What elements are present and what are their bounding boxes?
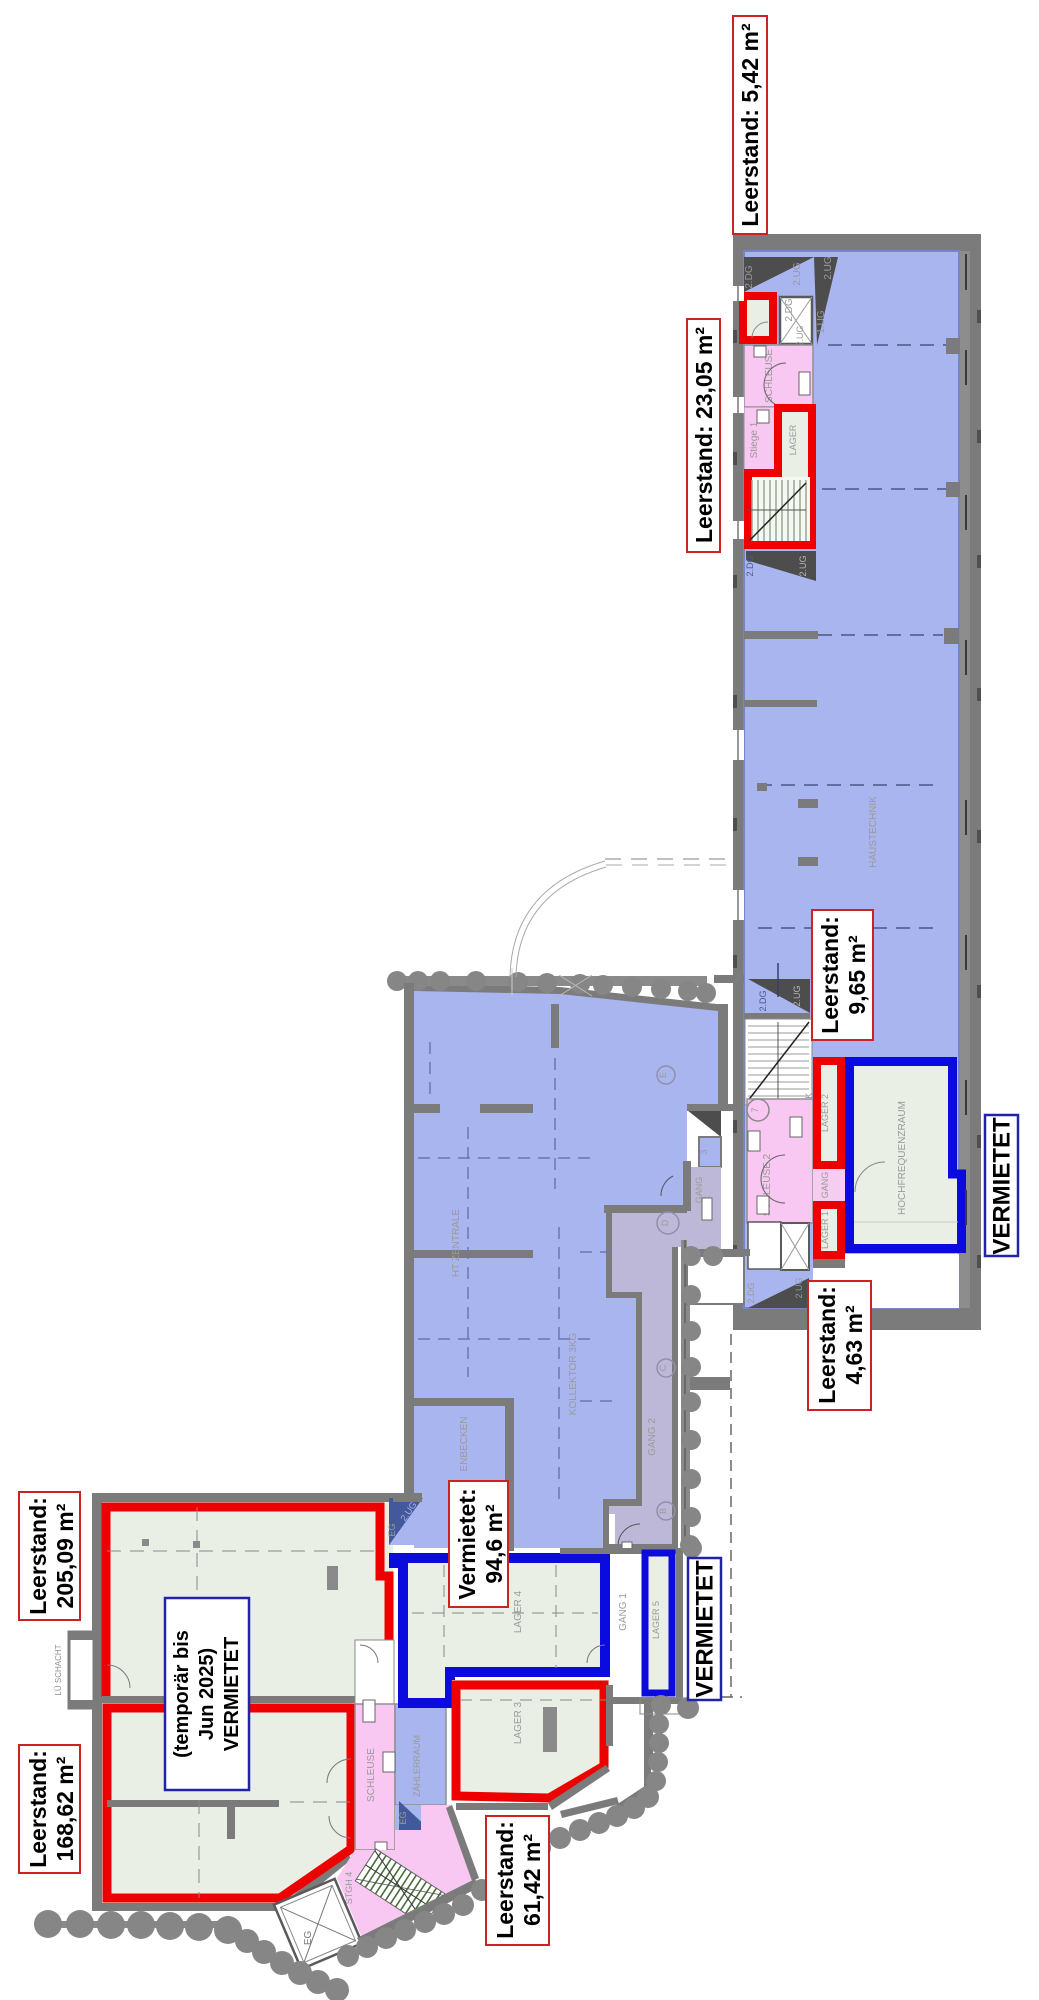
svg-text:KOLLEKTOR 3KG: KOLLEKTOR 3KG	[568, 1332, 579, 1415]
svg-text:(temporär bis: (temporär bis	[171, 1630, 193, 1758]
svg-text:61,42 m²: 61,42 m²	[519, 1834, 545, 1926]
svg-text:VERMIETET: VERMIETET	[692, 1560, 719, 1698]
svg-text:HAUSTECHNIK: HAUSTECHNIK	[868, 796, 879, 868]
svg-text:9,65 m²: 9,65 m²	[844, 935, 870, 1015]
svg-text:D: D	[660, 1219, 670, 1226]
svg-text:HOCHFREQUENZRAUM: HOCHFREQUENZRAUM	[897, 1101, 908, 1215]
svg-text:2.DG: 2.DG	[758, 990, 768, 1011]
svg-text:ENBECKEN: ENBECKEN	[459, 1416, 470, 1471]
svg-text:GANG 2: GANG 2	[647, 1418, 658, 1456]
svg-text:ZÄHLERRAUM: ZÄHLERRAUM	[412, 1735, 422, 1797]
svg-text:2.UG: 2.UG	[798, 555, 808, 576]
svg-text:2.DG: 2.DG	[744, 265, 755, 289]
svg-text:Jun 2025): Jun 2025)	[196, 1648, 218, 1740]
svg-text:94,6 m²: 94,6 m²	[481, 1504, 507, 1584]
svg-text:EG: EG	[398, 1811, 408, 1824]
svg-text:C: C	[658, 1364, 668, 1371]
svg-text:VERMIETET: VERMIETET	[221, 1637, 243, 1751]
svg-text:EG: EG	[387, 1523, 397, 1536]
svg-text:GANG 1: GANG 1	[618, 1593, 629, 1631]
svg-text:B: B	[658, 1508, 668, 1514]
svg-text:7: 7	[750, 1107, 760, 1112]
svg-text:E: E	[658, 1072, 668, 1078]
svg-text:VERMIETET: VERMIETET	[989, 1117, 1016, 1255]
svg-text:Leerstand: 23,05 m²: Leerstand: 23,05 m²	[691, 327, 717, 543]
svg-text:EG: EG	[303, 1930, 314, 1945]
svg-text:LAGER 4: LAGER 4	[513, 1590, 524, 1633]
svg-text:2.UG: 2.UG	[792, 985, 802, 1006]
svg-text:4,63 m²: 4,63 m²	[841, 1305, 867, 1385]
svg-text:Leerstand:: Leerstand:	[814, 1286, 840, 1404]
svg-text:LÜ SCHACHT: LÜ SCHACHT	[54, 1644, 63, 1695]
svg-text:2.UG: 2.UG	[792, 262, 803, 286]
svg-text:Leerstand:: Leerstand:	[492, 1821, 518, 1939]
svg-text:LAGER 3: LAGER 3	[513, 1701, 524, 1744]
svg-text:STGH 4: STGH 4	[344, 1872, 354, 1905]
svg-text:168,62 m²: 168,62 m²	[52, 1756, 78, 1861]
svg-text:2.DG: 2.DG	[745, 555, 755, 576]
svg-text:LAGER 1: LAGER 1	[820, 1211, 830, 1249]
svg-text:2.UG: 2.UG	[794, 1277, 804, 1298]
svg-text:Stiege 1: Stiege 1	[749, 421, 760, 458]
svg-text:Leerstand:: Leerstand:	[25, 1750, 51, 1868]
svg-text:SCHLEUSE: SCHLEUSE	[366, 1748, 377, 1802]
svg-text:LAGER: LAGER	[788, 424, 798, 455]
svg-text:2.UG: 2.UG	[795, 325, 805, 346]
svg-text:HT ZENTRALE: HT ZENTRALE	[451, 1209, 462, 1277]
svg-text:3: 3	[699, 1149, 709, 1154]
svg-text:1.UG: 1.UG	[816, 310, 827, 334]
svg-text:LAGER 2: LAGER 2	[820, 1094, 830, 1132]
svg-text:LAGER 5: LAGER 5	[651, 1601, 661, 1639]
svg-text:Leerstand:: Leerstand:	[817, 916, 843, 1034]
svg-text:2.DG: 2.DG	[746, 1282, 756, 1303]
svg-text:2.UG: 2.UG	[823, 256, 834, 280]
svg-text:GANG: GANG	[820, 1172, 830, 1199]
svg-text:2.DG: 2.DG	[784, 298, 795, 322]
svg-text:Leerstand:: Leerstand:	[25, 1497, 51, 1615]
svg-text:Vermietet:: Vermietet:	[454, 1488, 480, 1599]
svg-text:205,09 m²: 205,09 m²	[52, 1503, 78, 1608]
svg-text:Leerstand: 5,42 m²: Leerstand: 5,42 m²	[737, 23, 763, 227]
